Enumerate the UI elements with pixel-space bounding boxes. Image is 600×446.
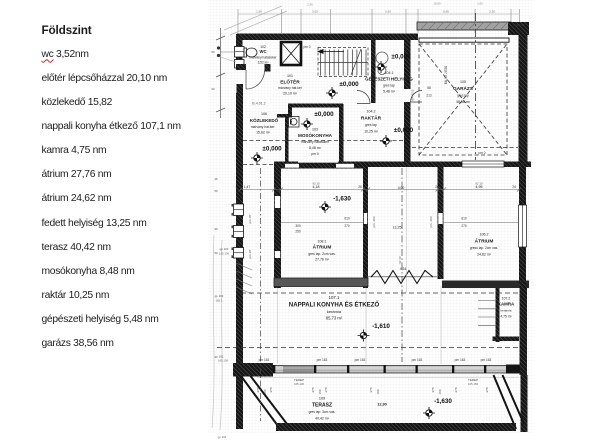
svg-text:50: 50 [214,189,218,193]
svg-text:4,18: 4,18 [313,185,320,189]
svg-text:TERASZ: TERASZ [312,403,332,409]
svg-text:15,62 m²: 15,62 m² [256,130,271,134]
svg-text:márvány hatásúker: márvány hatásúker [249,56,277,60]
svg-text:610: 610 [344,217,350,221]
svg-text:WC: WC [260,49,267,54]
svg-text:±0,000: ±0,000 [262,146,282,153]
svg-text:180: 180 [263,389,267,394]
svg-text:8,48 m²: 8,48 m² [309,146,322,150]
svg-text:pm -87: pm -87 [248,249,252,258]
svg-text:BA-03 J E80: BA-03 J E80 [444,66,448,85]
svg-text:4,34: 4,34 [400,267,407,271]
svg-text:12,90: 12,90 [377,403,387,407]
svg-text:90: 90 [214,227,218,231]
svg-text:pm 163: pm 163 [481,358,492,362]
svg-text:5,48 m²: 5,48 m² [383,90,396,94]
svg-text:101: 101 [287,74,293,78]
svg-text:GARÁZS: GARÁZS [453,85,473,91]
svg-text:106: 106 [261,112,267,116]
svg-text:gres lap: gres lap [383,84,395,88]
svg-text:gp 161: gp 161 [218,435,227,439]
svg-text:kerámia: kerámia [500,309,511,313]
svg-text:40,42 m²: 40,42 m² [315,417,330,421]
svg-text:gress lap. 2cm vas.: gress lap. 2cm vas. [470,246,498,250]
svg-text:24,62 m²: 24,62 m² [477,253,492,257]
svg-text:270: 270 [324,387,328,392]
svg-text:165.1: 165.1 [216,299,223,303]
svg-text:4,75 m²: 4,75 m² [500,315,512,319]
svg-text:1,56: 1,56 [256,10,262,14]
svg-text:kerámia: kerámia [327,309,342,314]
svg-text:pm 163: pm 163 [317,358,328,362]
svg-text:márvány hatásúker: márvány hatásúker [301,140,330,144]
svg-text:KAMRA: KAMRA [498,302,515,307]
svg-text:110,06: 110,06 [516,23,525,27]
svg-text:pm 0: pm 0 [311,152,318,156]
svg-text:180: 180 [376,389,380,394]
svg-text:270: 270 [311,387,315,392]
svg-text:105: 105 [460,80,466,84]
svg-text:pm -163: pm -163 [372,216,376,227]
svg-text:pm 163: pm 163 [412,358,423,362]
svg-text:ÁTRIUM: ÁTRIUM [475,238,494,245]
svg-text:gres lap: gres lap [457,94,469,98]
svg-text:B.4.01.2: B.4.01.2 [252,102,265,106]
svg-text:610: 610 [461,217,467,221]
svg-text:165.136: 165.136 [218,359,229,363]
svg-text:50: 50 [211,50,215,54]
svg-text:40: 40 [235,185,239,189]
svg-text:88: 88 [427,86,431,90]
svg-text:10,25 m²: 10,25 m² [364,130,379,134]
svg-text:10,90: 10,90 [434,2,441,6]
svg-text:270: 270 [344,224,350,228]
svg-text:92 10: 92 10 [313,182,320,186]
svg-text:270: 270 [269,387,273,392]
svg-text:5,85: 5,85 [443,10,449,14]
svg-text:165.136: 165.136 [294,382,305,386]
svg-text:3,05: 3,05 [312,10,318,14]
svg-text:0,90: 0,90 [385,10,391,14]
svg-text:±0,000: ±0,000 [339,81,359,88]
svg-text:gres lap. 3cm vas.: gres lap. 3cm vas. [309,410,336,414]
svg-text:ÁTRIUM: ÁTRIUM [313,244,332,251]
svg-text:165.156: 165.156 [468,382,479,386]
svg-text:24: 24 [512,185,516,189]
svg-text:180: 180 [438,389,442,394]
svg-text:270: 270 [369,387,373,392]
svg-text:300: 300 [295,224,301,228]
svg-text:38,56 m²: 38,56 m² [456,100,471,104]
svg-text:pm 0: pm 0 [478,151,485,155]
svg-text:107.1: 107.1 [329,295,341,300]
svg-text:márvány hat.ker: márvány hat.ker [278,86,303,90]
svg-text:-1,610: -1,610 [372,323,390,330]
svg-text:104.1: 104.1 [385,71,394,75]
svg-text:pm -87: pm -87 [248,214,252,223]
svg-text:gp 163: gp 163 [215,294,224,298]
svg-text:GÉPÉSZETI HELYISÉG: GÉPÉSZETI HELYISÉG [365,77,413,82]
svg-text:3,52 m²: 3,52 m² [258,61,269,65]
svg-text:1,00: 1,00 [477,2,483,6]
svg-text:BA-02 E: BA-02 E [411,89,415,100]
svg-text:1,47: 1,47 [244,185,250,189]
svg-text:270: 270 [461,224,467,228]
svg-text:gp 162: gp 162 [220,247,229,251]
svg-text:márvány hat.ker.: márvány hat.ker. [251,125,276,129]
svg-text:13,25: 13,25 [393,226,402,230]
svg-text:108.1: 108.1 [318,240,327,244]
svg-text:-1,630: -1,630 [333,196,351,203]
svg-text:90: 90 [211,87,215,91]
svg-text:92 10: 92 10 [398,256,402,263]
svg-text:gres lap. 2cm vas.: gres lap. 2cm vas. [308,252,336,256]
svg-text:pm -163: pm -163 [429,216,433,227]
svg-text:85,73 m²: 85,73 m² [326,316,343,321]
svg-text:±0,000: ±0,000 [391,54,411,61]
svg-text:NAPPALI KONYHA ÉS ÉTKEZŐ: NAPPALI KONYHA ÉS ÉTKEZŐ [289,301,380,309]
svg-text:250: 250 [295,230,301,234]
svg-text:270: 270 [256,387,260,392]
svg-text:50: 50 [214,251,218,255]
svg-text:4,00: 4,00 [398,186,405,190]
svg-text:KÖZLEKEDŐ: KÖZLEKEDŐ [250,117,279,123]
svg-text:109: 109 [319,397,325,401]
svg-text:pm 163: pm 163 [259,358,270,362]
svg-text:20: 20 [435,185,439,189]
svg-text:-1,630: -1,630 [434,398,452,405]
svg-text:±0,000: ±0,000 [394,127,414,134]
svg-text:46: 46 [214,177,218,181]
svg-text:4,95: 4,95 [476,185,483,189]
svg-text:106.2: 106.2 [480,233,489,237]
svg-text:104.2: 104.2 [367,110,376,114]
svg-text:92 10: 92 10 [476,182,483,186]
svg-text:gres lap: gres lap [365,123,377,127]
svg-text:165.136: 165.136 [219,252,230,256]
svg-text:20,10 m²: 20,10 m² [283,91,298,95]
svg-text:270: 270 [454,387,458,392]
svg-text:103: 103 [312,128,318,132]
svg-text:±0,000: ±0,000 [314,111,334,118]
svg-text:pm 163: pm 163 [455,358,466,362]
svg-text:27,76 m²: 27,76 m² [315,258,330,262]
svg-text:213: 213 [426,94,432,98]
svg-text:20: 20 [358,185,362,189]
svg-text:MOSÓKONYHA: MOSÓKONYHA [298,131,333,138]
svg-text:pm 0: pm 0 [303,45,310,49]
svg-text:RAKTÁR: RAKTÁR [361,115,382,122]
svg-text:pm 163: pm 163 [355,358,366,362]
svg-text:2,36: 2,36 [307,3,313,7]
svg-text:270: 270 [431,387,435,392]
svg-text:3,30: 3,30 [489,10,495,14]
svg-text:107.2: 107.2 [502,297,511,301]
svg-text:270: 270 [485,387,489,392]
svg-text:180: 180 [318,389,322,394]
